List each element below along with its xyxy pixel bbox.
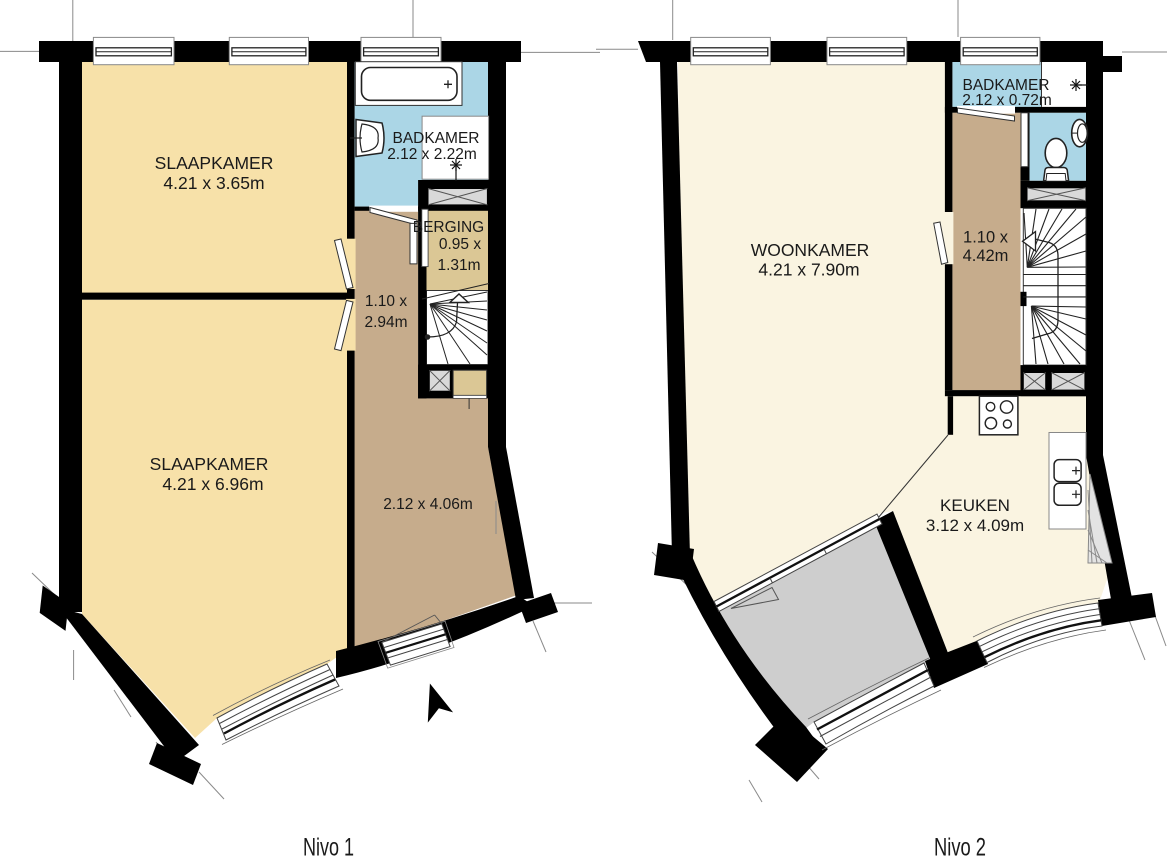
svg-text:Nivo 2: Nivo 2 [934, 834, 986, 858]
svg-text:BADKAMER: BADKAMER [393, 130, 480, 147]
svg-text:SLAAPKAMER: SLAAPKAMER [150, 454, 269, 474]
svg-text:3.12 x 4.09m: 3.12 x 4.09m [926, 516, 1024, 535]
svg-text:1.10 x: 1.10 x [963, 229, 1009, 247]
svg-text:0.95 x: 0.95 x [439, 236, 481, 253]
svg-text:KEUKEN: KEUKEN [940, 496, 1010, 515]
svg-text:2.12 x 0.72m: 2.12 x 0.72m [962, 92, 1052, 109]
svg-text:2.94m: 2.94m [364, 314, 407, 331]
svg-text:1.31m: 1.31m [437, 257, 480, 274]
svg-text:BERGING: BERGING [413, 219, 484, 236]
svg-text:4.21 x 3.65m: 4.21 x 3.65m [163, 173, 264, 193]
svg-text:WOONKAMER: WOONKAMER [751, 240, 870, 260]
svg-text:1.10 x: 1.10 x [365, 293, 407, 310]
svg-text:2.12 x 4.06m: 2.12 x 4.06m [383, 496, 473, 513]
svg-text:2.12 x 2.22m: 2.12 x 2.22m [387, 146, 477, 163]
svg-text:4.42m: 4.42m [963, 247, 1009, 265]
svg-text:4.21 x 7.90m: 4.21 x 7.90m [758, 260, 859, 280]
svg-text:SLAAPKAMER: SLAAPKAMER [155, 153, 274, 173]
svg-text:4.21 x 6.96m: 4.21 x 6.96m [162, 474, 263, 494]
svg-text:Nivo 1: Nivo 1 [303, 834, 354, 858]
